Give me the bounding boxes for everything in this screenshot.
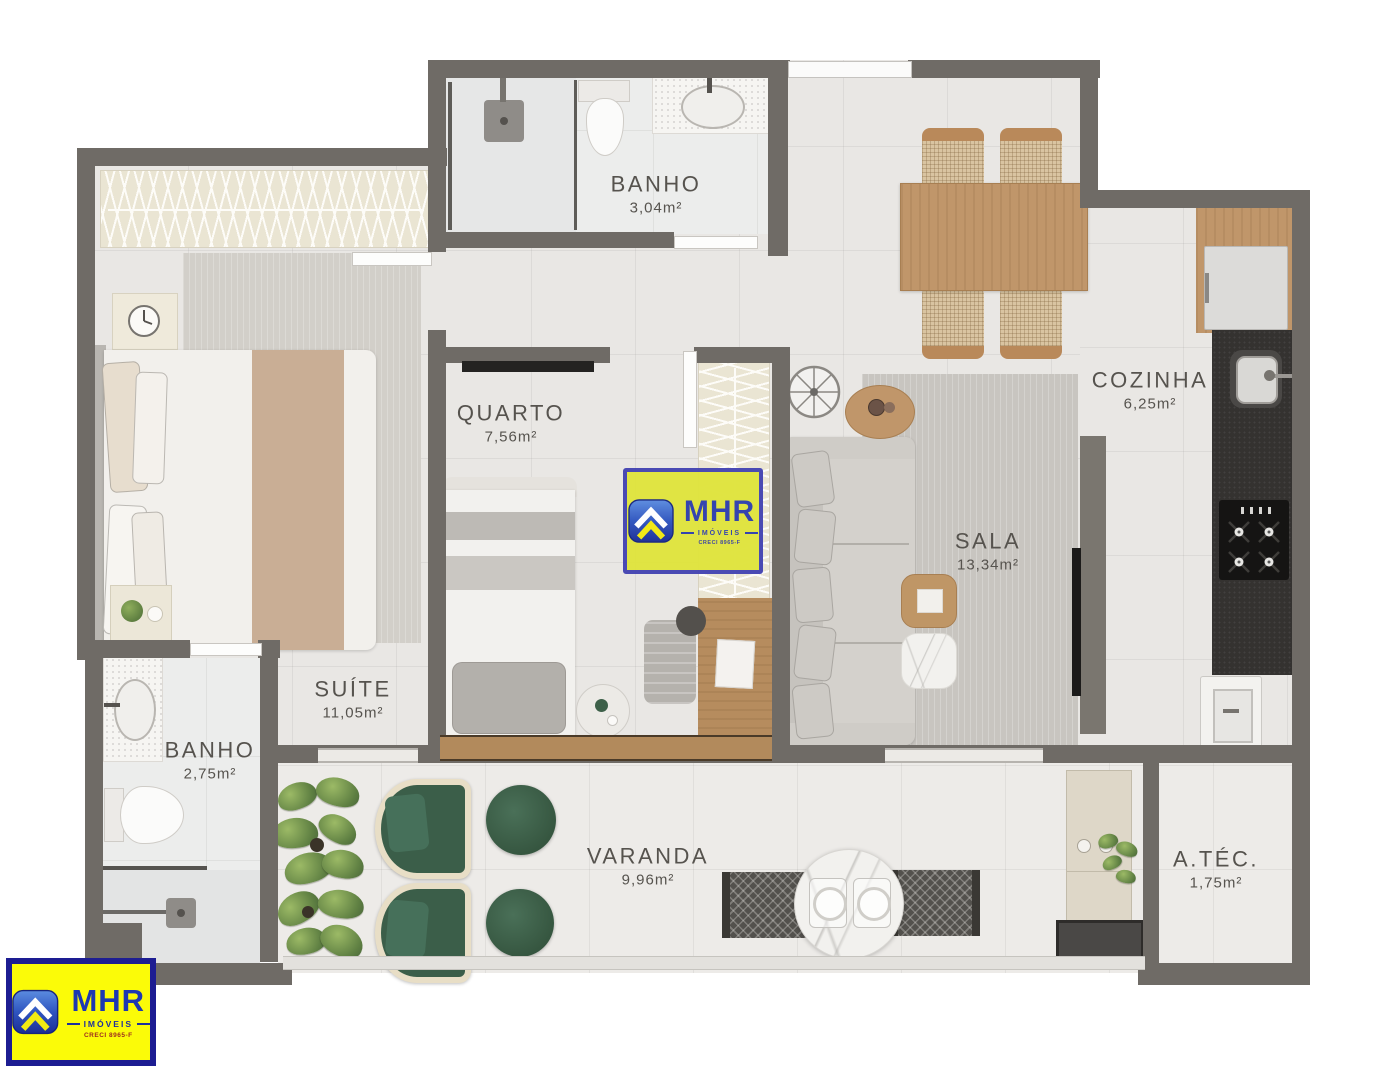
room-area: 6,25m² xyxy=(1092,396,1209,413)
door-leaf-suite xyxy=(352,252,432,266)
wall-segment xyxy=(1138,963,1310,985)
faucet-base xyxy=(1264,370,1275,381)
wall-segment xyxy=(768,60,788,256)
round-table-varanda xyxy=(794,849,904,959)
room-area: 7,56m² xyxy=(457,429,565,446)
wall-segment xyxy=(140,963,292,985)
clock-icon xyxy=(127,304,161,338)
wall-segment xyxy=(1292,190,1310,985)
shower-glass xyxy=(574,80,577,230)
room-area: 3,04m² xyxy=(611,200,702,217)
hanging-plant xyxy=(1096,832,1140,892)
plate-icon xyxy=(813,887,847,921)
leaf-icon xyxy=(271,884,324,932)
vase-icon xyxy=(147,606,163,622)
plate-icon xyxy=(857,887,891,921)
cushion xyxy=(384,793,430,853)
cup-icon xyxy=(595,699,608,712)
cushion xyxy=(385,899,430,958)
dining-chair xyxy=(1000,286,1062,359)
faucet-icon xyxy=(104,703,120,707)
door-leaf-quarto xyxy=(683,351,697,448)
wall-segment xyxy=(1080,60,1098,208)
pouf-varanda xyxy=(486,889,554,957)
decor-icon xyxy=(884,402,895,413)
shower-arm xyxy=(103,910,171,914)
balcony-railing xyxy=(283,956,1145,970)
room-label-suite: SUÍTE 11,05m² xyxy=(314,677,391,722)
leaf-icon xyxy=(316,887,365,921)
desk-lamp-icon xyxy=(676,606,706,636)
door-leaf-banho-social xyxy=(674,236,758,249)
pillow xyxy=(132,371,168,484)
room-name: COZINHA xyxy=(1092,368,1209,394)
dining-chair xyxy=(922,286,984,359)
plant-varanda xyxy=(272,778,382,978)
door-leaf-banho-suite xyxy=(190,643,262,656)
coffee-table-sala xyxy=(901,574,957,628)
window xyxy=(788,61,912,78)
sliding-door-glass xyxy=(885,748,1043,763)
wall-segment xyxy=(772,347,790,762)
leaf-icon xyxy=(274,777,320,815)
wardrobe-suite xyxy=(100,170,432,248)
plant-icon xyxy=(121,600,143,622)
room-label-sala: SALA 13,34m² xyxy=(955,529,1021,574)
brand-license: CRECI 8965-F xyxy=(698,540,740,546)
sliding-door-glass xyxy=(318,748,418,763)
bed-quarto-band xyxy=(444,512,575,540)
room-name: QUARTO xyxy=(457,401,565,427)
room-name: BANHO xyxy=(165,738,256,764)
room-name: SALA xyxy=(955,529,1021,555)
vanity-banho-suite xyxy=(103,656,163,762)
leaf-icon xyxy=(320,847,366,882)
soil-icon xyxy=(302,906,314,918)
faucet-icon xyxy=(707,77,712,93)
brand-subtitle: IMÓVEIS xyxy=(681,530,758,537)
brand-name: MHR xyxy=(71,985,145,1016)
room-name: A.TÉC. xyxy=(1173,847,1259,873)
sofa-pillow xyxy=(793,508,836,566)
wall-segment xyxy=(77,148,95,660)
sofa-pillow xyxy=(791,682,834,740)
sink-icon xyxy=(114,679,156,741)
watermark-logo-corner: MHR IMÓVEIS CRECI 8965-F xyxy=(6,958,156,1066)
room-label-banho-suite: BANHO 2,75m² xyxy=(165,738,256,783)
roof-chevron-icon xyxy=(628,499,674,543)
brand-license: CRECI 8965-F xyxy=(84,1032,133,1039)
decor-icon xyxy=(868,399,885,416)
wall-segment xyxy=(1143,757,1159,969)
room-name: BANHO xyxy=(611,172,702,198)
leaf-icon xyxy=(1115,868,1137,885)
sink-icon xyxy=(681,85,745,129)
pouf-varanda xyxy=(486,785,556,855)
room-label-area-tecnica: A.TÉC. 1,75m² xyxy=(1173,847,1259,892)
fridge xyxy=(1204,246,1288,330)
nightstand-suite xyxy=(112,293,178,350)
wall-segment xyxy=(428,60,446,252)
placemat xyxy=(809,878,847,928)
placemat xyxy=(853,878,891,928)
wall-segment xyxy=(77,148,447,166)
leaf-icon xyxy=(313,773,363,811)
roof-chevron-icon xyxy=(12,989,59,1035)
room-label-varanda: VARANDA 9,96m² xyxy=(587,844,709,889)
room-area: 1,75m² xyxy=(1173,875,1259,892)
room-area: 9,96m² xyxy=(587,872,709,889)
sofa-pillow xyxy=(793,624,837,682)
armchair-varanda xyxy=(375,779,471,879)
room-label-cozinha: COZINHA 6,25m² xyxy=(1092,368,1209,413)
tv-sala xyxy=(1072,548,1081,696)
room-area: 13,34m² xyxy=(955,557,1021,574)
pillow-quarto xyxy=(452,662,566,734)
wall-segment xyxy=(908,60,1100,78)
sofa-seat-line xyxy=(825,543,909,545)
faucet-icon xyxy=(1223,709,1239,713)
wall-segment xyxy=(1080,190,1310,208)
shower-head-icon xyxy=(166,898,196,928)
soil-icon xyxy=(310,838,324,852)
shower-nozzle xyxy=(500,117,508,125)
kitchen-sink xyxy=(1230,350,1282,408)
vanity-banho-social xyxy=(652,76,770,134)
tank-basin xyxy=(1213,689,1253,743)
side-table-quarto xyxy=(576,684,630,738)
wall-segment xyxy=(260,640,278,962)
dining-table xyxy=(900,183,1088,291)
paper-icon xyxy=(715,639,755,689)
room-area: 11,05m² xyxy=(314,705,391,722)
wall-segment xyxy=(428,60,790,78)
knob-icon xyxy=(1077,839,1091,853)
wardrobe-rail xyxy=(108,209,425,211)
shower-arm xyxy=(500,78,506,102)
saucer-icon xyxy=(607,715,618,726)
wall-segment xyxy=(446,232,674,248)
wall-segment xyxy=(1050,745,1310,763)
bed-suite-blanket xyxy=(252,350,344,650)
room-name: VARANDA xyxy=(587,844,709,870)
side-table-sala xyxy=(845,385,915,439)
pouf-marble-sala xyxy=(901,633,957,689)
room-label-banho-social: BANHO 3,04m² xyxy=(611,172,702,217)
bed-quarto-band xyxy=(444,556,575,590)
sofa-pillow xyxy=(790,450,835,509)
shower-nozzle xyxy=(177,909,185,917)
shower-glass xyxy=(448,82,452,230)
room-name: SUÍTE xyxy=(314,677,391,703)
wall-clock-icon xyxy=(786,364,842,420)
tv-quarto xyxy=(462,361,594,372)
desk-quarto xyxy=(698,598,772,738)
logo-texts: MHR IMÓVEIS CRECI 8965-F xyxy=(67,985,150,1039)
watermark-logo-center: MHR IMÓVEIS CRECI 8965-F xyxy=(623,468,763,574)
sofa-seat-line xyxy=(825,642,909,644)
sofa-pillow xyxy=(792,566,835,623)
room-area: 2,75m² xyxy=(165,766,256,783)
fridge-handle xyxy=(1205,273,1209,303)
logo-texts: MHR IMÓVEIS CRECI 8965-F xyxy=(681,497,758,546)
napkin-icon xyxy=(917,589,943,613)
wall-segment xyxy=(428,330,446,762)
sliding-door-wood-frame xyxy=(440,735,772,761)
laundry-tank xyxy=(1200,676,1262,752)
shower-head-icon xyxy=(484,100,524,142)
brand-name: MHR xyxy=(684,497,755,527)
floor-plan: BANHO 3,04m² COZINHA 6,25m² QUARTO 7,56m… xyxy=(0,0,1400,1060)
brand-subtitle: IMÓVEIS xyxy=(67,1019,150,1029)
shower-divider xyxy=(103,866,207,870)
room-label-quarto: QUARTO 7,56m² xyxy=(457,401,565,446)
tv-wall-panel xyxy=(1080,436,1106,734)
cooktop xyxy=(1219,500,1289,580)
